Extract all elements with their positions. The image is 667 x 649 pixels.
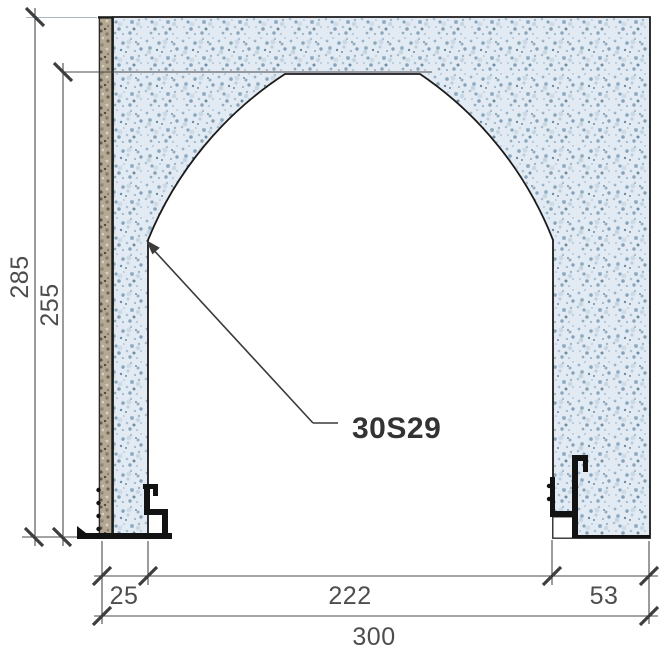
fixing-dot (96, 488, 100, 492)
right-slot-hook-stub (583, 455, 588, 472)
right-floor-edge (577, 535, 650, 538)
dim-label-total-width: 300 (352, 623, 395, 649)
left-profile-vertical (144, 484, 150, 513)
dim-label-opening-height: 255 (36, 283, 64, 326)
fixing-dot (96, 514, 100, 518)
arched-opening-section-drawing: 285 255 25 222 53 300 30S29 (0, 0, 667, 649)
fixing-dot (547, 484, 551, 488)
dim-label-right-pier: 53 (590, 582, 619, 610)
leader-arrow (146, 240, 338, 423)
right-slot-bar (572, 461, 578, 538)
left-profile-foot (162, 509, 168, 538)
fixing-dot (96, 501, 100, 505)
dim-label-opening-width: 222 (328, 582, 371, 610)
technical-drawing-page: 285 255 25 222 53 300 30S29 (0, 0, 667, 649)
left-sill-end-tab (77, 526, 86, 533)
fixing-dot (547, 497, 551, 501)
left-profile-hook-stub (153, 484, 158, 496)
dim-label-total-height: 285 (6, 255, 34, 298)
left-sill-plate (77, 533, 172, 539)
dim-label-left-reveal: 25 (110, 582, 139, 610)
wall-section (113, 17, 650, 538)
plaster-layer (98, 17, 113, 537)
component-code-label: 30S29 (352, 412, 441, 445)
fixing-dot (96, 527, 100, 531)
dimension-labels: 285 255 25 222 53 300 (6, 255, 618, 649)
right-ledge (550, 511, 575, 517)
